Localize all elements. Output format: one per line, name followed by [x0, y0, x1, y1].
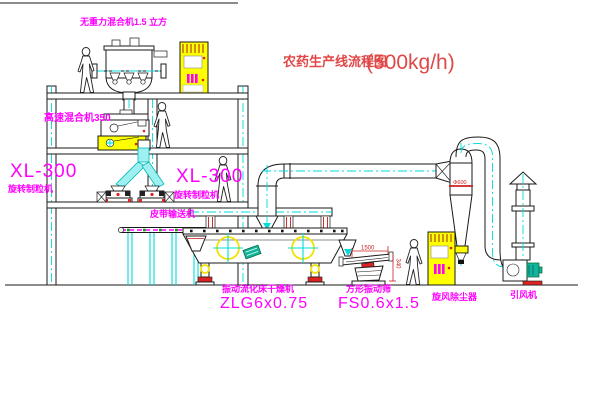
- cabinet-window: [184, 56, 202, 68]
- screen-base: [355, 266, 383, 281]
- floor-slab-top: [47, 93, 248, 99]
- label-screen-name: 方形振动筛: [346, 283, 391, 294]
- cabinet-controls: [434, 264, 445, 274]
- label-granulator-right-name: 旋转制粒机: [173, 189, 219, 200]
- cyclone-diameter-text: Φ600: [453, 180, 467, 186]
- cyclone-cylinder: [450, 163, 472, 195]
- label-granulator-left-name: 旋转制粒机: [7, 183, 53, 194]
- pipe-elbow: [258, 164, 284, 186]
- process-flow-diagram: 1500 340 Φ600: [0, 0, 600, 403]
- indicator-light: [450, 247, 453, 250]
- person-figure: [406, 240, 422, 285]
- cyclone-discharge-flange: [454, 246, 468, 253]
- indicator-light: [203, 57, 206, 60]
- label-granulator-left-model: XL-300: [10, 161, 77, 182]
- granulator-right-machine: [138, 186, 174, 202]
- label-gravity-mixer: 无重力混合机1.5 立方: [79, 16, 167, 27]
- indicator-light: [448, 267, 451, 270]
- mixer-valves: [110, 73, 148, 84]
- label-cyclone: 旋风除尘器: [431, 291, 478, 302]
- diagram-canvas: 1500 340 Φ600: [0, 0, 600, 403]
- dryer-foot-right: [306, 263, 324, 285]
- screen-feed-chute: [339, 240, 356, 256]
- label-high-speed-mixer: 高速混合机350: [44, 111, 111, 124]
- granulator-left-machine: [97, 186, 132, 202]
- fluid-bed-dryer-machine: [183, 228, 347, 285]
- induced-draft-fan-machine: [503, 260, 542, 285]
- cabinet-controls: [187, 74, 198, 83]
- fan-housing: [503, 260, 527, 281]
- label-granulator-right-model: XL-300: [176, 166, 243, 187]
- control-cabinet-top: [180, 42, 208, 93]
- dryer-body: [183, 234, 347, 263]
- floor-slab-lower: [47, 202, 248, 208]
- cabinet-window: [431, 246, 448, 258]
- label-dryer-name: 振动流化床干燥机: [222, 283, 294, 294]
- label-dryer-model: ZLG6x0.75: [220, 295, 308, 312]
- person-figure: [78, 48, 94, 93]
- dimension-text: 340: [395, 259, 401, 270]
- label-belt-conveyor: 皮带输送机: [149, 208, 195, 219]
- control-cabinet-bottom: [428, 232, 455, 285]
- label-fan: 引风机: [510, 289, 537, 300]
- dimension-text: 1500: [361, 246, 375, 252]
- label-screen-model: FS0.6x1.5: [338, 295, 420, 312]
- diagram-capacity: (500kg/h): [366, 51, 455, 74]
- dryer-foot-left: [196, 263, 214, 285]
- indicator-light: [202, 79, 205, 82]
- fan-base: [523, 281, 542, 285]
